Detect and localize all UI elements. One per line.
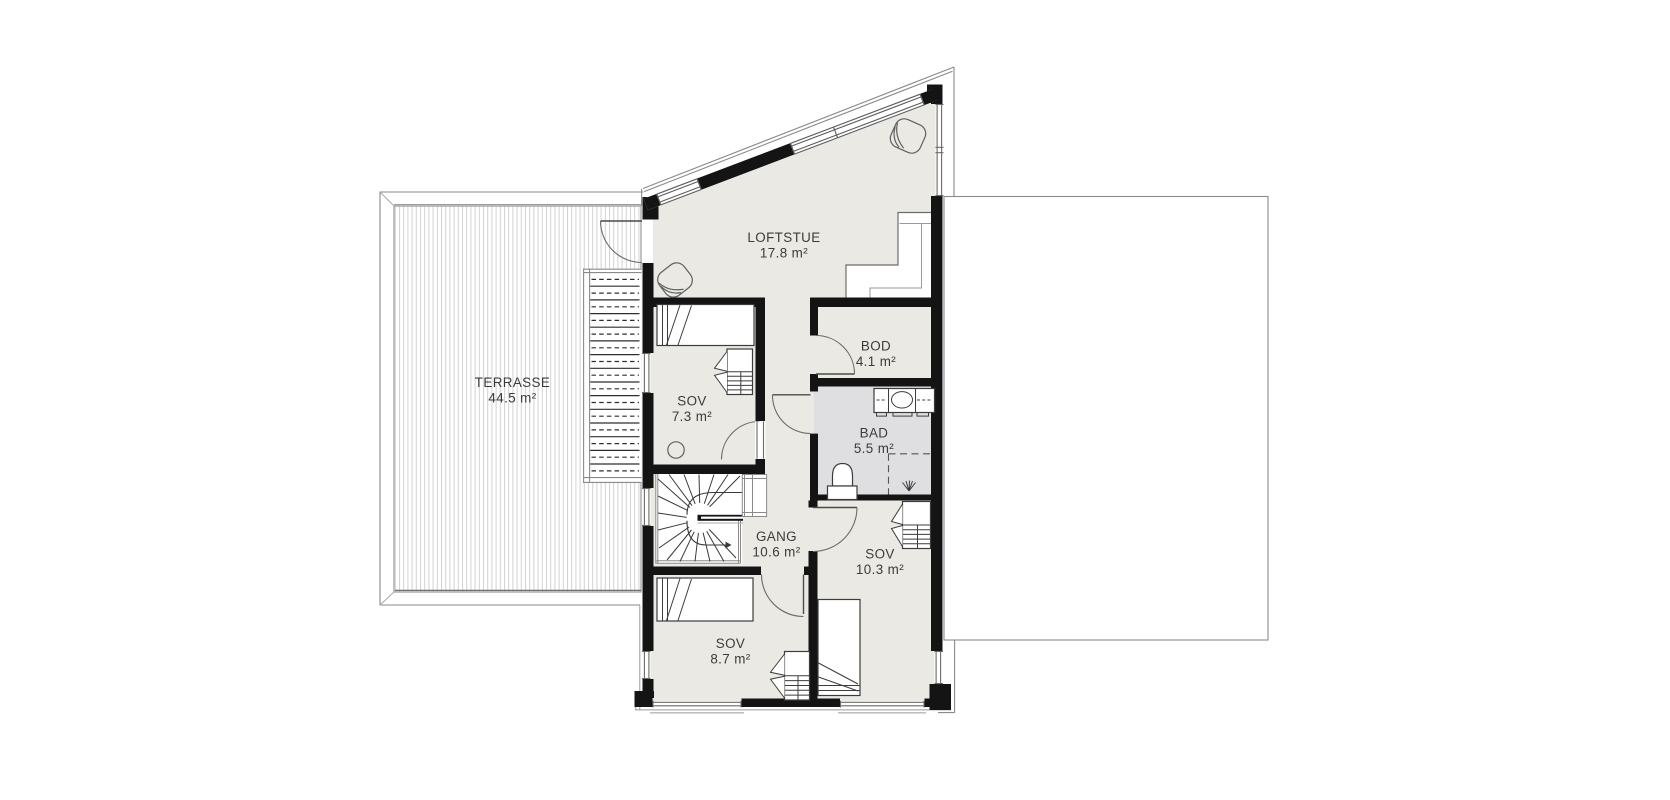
svg-text:4.1 m²: 4.1 m²: [856, 354, 896, 369]
svg-text:44.5 m²: 44.5 m²: [488, 391, 536, 406]
svg-text:17.8 m²: 17.8 m²: [760, 246, 808, 261]
svg-text:10.6 m²: 10.6 m²: [752, 545, 800, 560]
svg-text:7.3 m²: 7.3 m²: [672, 409, 712, 424]
svg-text:SOV: SOV: [677, 394, 706, 409]
svg-text:TERRASSE: TERRASSE: [475, 375, 550, 390]
svg-text:8.7 m²: 8.7 m²: [710, 652, 750, 667]
svg-text:SOV: SOV: [716, 636, 745, 651]
svg-text:SOV: SOV: [865, 547, 894, 562]
svg-text:GANG: GANG: [756, 529, 797, 544]
svg-text:5.5 m²: 5.5 m²: [854, 441, 894, 456]
svg-text:BOD: BOD: [861, 339, 891, 354]
svg-text:BAD: BAD: [860, 426, 889, 441]
svg-text:10.3 m²: 10.3 m²: [856, 562, 904, 577]
svg-text:LOFTSTUE: LOFTSTUE: [747, 230, 820, 245]
